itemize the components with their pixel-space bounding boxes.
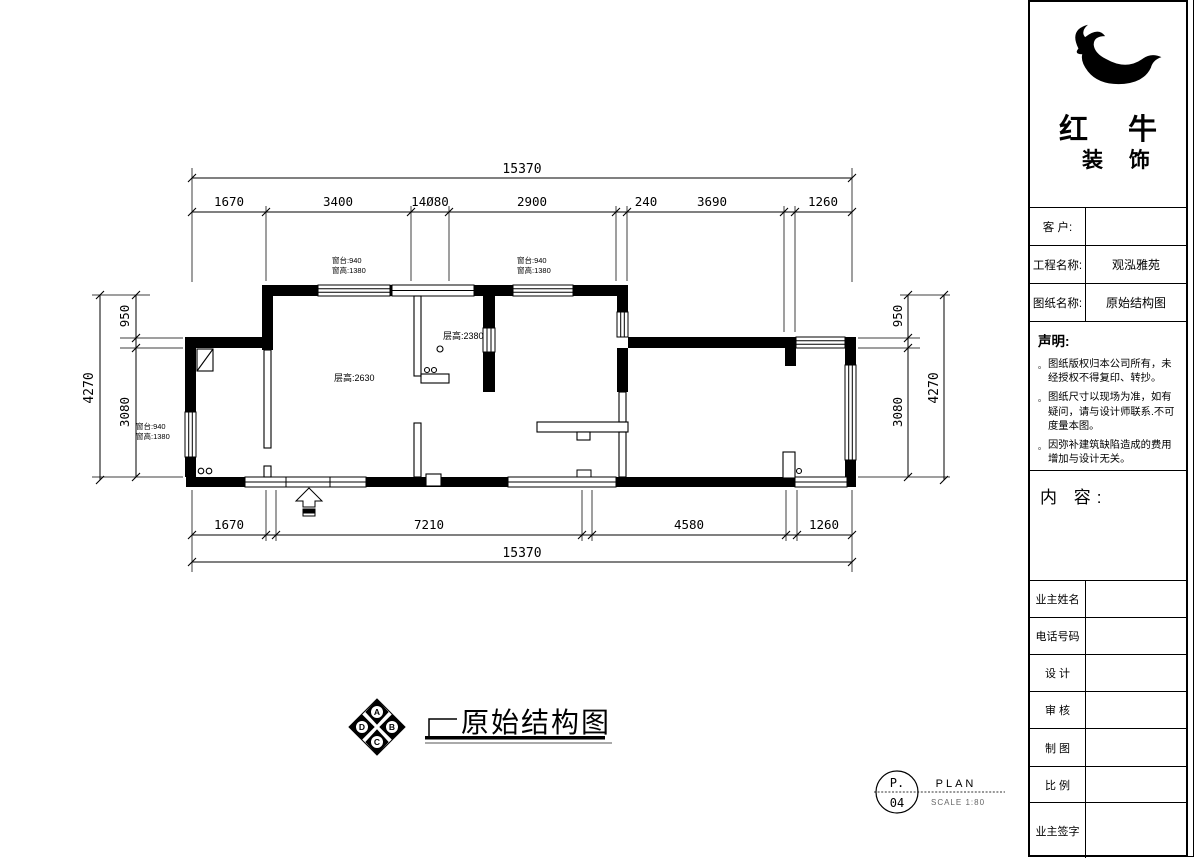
window-note-sill: 窗台:940 (332, 255, 362, 265)
dim-bot-1: 1670 (214, 517, 244, 532)
sheet-border-bottom (1028, 856, 1194, 857)
owner-name-row: 业主姓名 (1030, 581, 1186, 618)
content-section: 内 容: (1030, 471, 1186, 581)
sheet-name-label: 图纸名称: (1030, 284, 1086, 321)
dim-top-5: 240 (635, 194, 658, 209)
page-scale-label: SCALE 1:80 (931, 798, 985, 807)
dim-left-lower: 3080 (117, 397, 132, 427)
bullet-dot: 。 (1038, 391, 1048, 434)
window-note-height: 窗高:1380 (517, 265, 551, 275)
signature-field[interactable] (1086, 803, 1186, 858)
dim-right-upper: 950 (890, 305, 905, 328)
compass-letter-c: C (374, 737, 380, 747)
bullet-dot: 。 (1038, 358, 1048, 386)
sheet-name-row: 图纸名称: 原始结构图 (1030, 284, 1186, 322)
client-value (1086, 208, 1186, 245)
statement-item: 。 图纸尺寸以现场为准，如有疑问，请与设计师联系.不可度量本图。 (1038, 391, 1180, 434)
walls (185, 285, 856, 487)
title-bracket (429, 719, 457, 737)
drawing-sheet: 15370 1670 3400 14Ø80 2900 240 3690 1260… (0, 0, 1200, 867)
designer-row: 设 计 (1030, 655, 1186, 692)
dimension-labels: 15370 1670 3400 14Ø80 2900 240 3690 1260… (82, 162, 942, 561)
dim-top-2: 3400 (323, 194, 353, 209)
project-label: 工程名称: (1030, 246, 1086, 283)
dim-right-lower: 3080 (890, 397, 905, 427)
drawing-title-text: 原始结构图 (461, 707, 611, 738)
scale-row: 比 例 (1030, 767, 1186, 803)
page-number: 04 (890, 796, 904, 810)
dim-bot-2: 7210 (414, 517, 444, 532)
title-underline (425, 736, 605, 740)
brand-name: 红 牛 (1030, 106, 1186, 148)
dim-top-1: 1670 (214, 194, 244, 209)
compass-letter-d: D (359, 722, 365, 732)
dim-top-6: 3690 (697, 194, 727, 209)
statement-item: 。 因弥补建筑缺陷造成的费用增加与设计无关。 (1038, 439, 1180, 467)
window-note-height: 窗高:1380 (136, 431, 170, 441)
dim-bot-total: 15370 (502, 546, 541, 561)
statement-section: 声明: 。 图纸版权归本公司所有，未经授权不得复印、转抄。 。 图纸尺寸以现场为… (1030, 322, 1186, 471)
bull-logo-icon (1046, 16, 1170, 104)
content-label: 内 容: (1040, 488, 1107, 507)
project-row: 工程名称: 观泓雅苑 (1030, 246, 1186, 284)
auditor-field[interactable] (1086, 692, 1186, 728)
dimension-lines (96, 174, 948, 566)
project-value: 观泓雅苑 (1086, 246, 1186, 283)
drafter-row: 制 图 (1030, 729, 1186, 767)
client-row: 客 户: (1030, 208, 1186, 246)
extension-lines (92, 168, 950, 572)
signature-row: 业主签字 (1030, 803, 1186, 858)
partitions (197, 296, 802, 486)
scale-field[interactable] (1086, 767, 1186, 802)
drafter-field[interactable] (1086, 729, 1186, 766)
statement-heading: 声明: (1038, 330, 1180, 350)
phone-field[interactable] (1086, 618, 1186, 654)
statement-item: 。 图纸版权归本公司所有，未经授权不得复印、转抄。 (1038, 358, 1180, 386)
page-prefix: P. (890, 776, 904, 790)
dim-top-7: 1260 (808, 194, 838, 209)
logo-zone: 红 牛 装 饰 (1030, 2, 1186, 208)
dim-top-4: 2900 (517, 194, 547, 209)
bullet-dot: 。 (1038, 439, 1048, 467)
dim-top-3: 14Ø80 (411, 194, 449, 209)
dim-left-upper: 950 (117, 305, 132, 328)
compass-icon: A B C D (349, 699, 405, 755)
room-height-note: 层高:2630 (334, 372, 375, 383)
brand-subname: 装 饰 (1082, 144, 1160, 174)
page-marker: P. 04 PLAN SCALE 1:80 (874, 771, 1005, 813)
entry-arrow-icon (296, 488, 322, 516)
designer-field[interactable] (1086, 655, 1186, 691)
page-type-label: PLAN (936, 778, 977, 790)
dim-left-overall: 4270 (82, 372, 97, 403)
owner-name-field[interactable] (1086, 581, 1186, 617)
window-note-sill: 窗台:940 (517, 255, 547, 265)
drawing-title-group: A B C D 原始结构图 (349, 699, 612, 755)
window-note-sill: 窗台:940 (136, 421, 166, 431)
windows (185, 285, 856, 487)
window-note-height: 窗高:1380 (332, 265, 366, 275)
dim-top-total: 15370 (502, 162, 541, 177)
sheet-border-line (1193, 0, 1194, 857)
dim-bot-3: 4580 (674, 517, 704, 532)
dim-right-overall: 4270 (927, 372, 942, 403)
title-block: 红 牛 装 饰 客 户: 工程名称: 观泓雅苑 图纸名称: 原始结构图 声明: … (1028, 0, 1188, 857)
sheet-name-value: 原始结构图 (1086, 284, 1186, 321)
room-height-note: 层高:2380 (443, 330, 484, 341)
phone-row: 电话号码 (1030, 618, 1186, 655)
auditor-row: 审 核 (1030, 692, 1186, 729)
compass-letter-a: A (374, 707, 380, 717)
client-label: 客 户: (1030, 208, 1086, 245)
floor-plan-canvas: 15370 1670 3400 14Ø80 2900 240 3690 1260… (0, 0, 1020, 867)
dim-bot-4: 1260 (809, 517, 839, 532)
compass-letter-b: B (389, 722, 395, 732)
